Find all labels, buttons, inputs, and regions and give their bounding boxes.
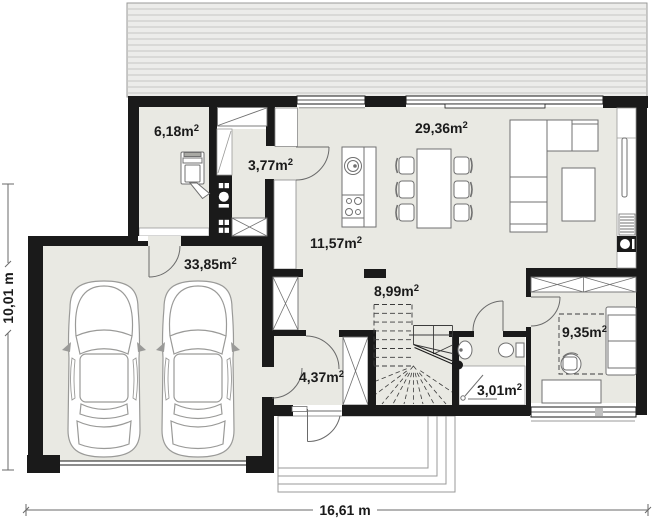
svg-text:10,01 m: 10,01 m [0, 272, 16, 323]
svg-text:3,01m2: 3,01m2 [477, 382, 522, 398]
svg-text:6,18m2: 6,18m2 [154, 123, 199, 139]
svg-text:11,57m2: 11,57m2 [310, 235, 362, 251]
svg-text:29,36m2: 29,36m2 [415, 120, 468, 136]
svg-text:3,77m2: 3,77m2 [248, 157, 293, 173]
svg-text:16,61 m: 16,61 m [319, 502, 370, 518]
svg-text:33,85m2: 33,85m2 [184, 256, 237, 272]
svg-text:8,99m2: 8,99m2 [374, 283, 419, 299]
svg-text:9,35m2: 9,35m2 [562, 324, 607, 340]
svg-text:4,37m2: 4,37m2 [299, 369, 344, 385]
